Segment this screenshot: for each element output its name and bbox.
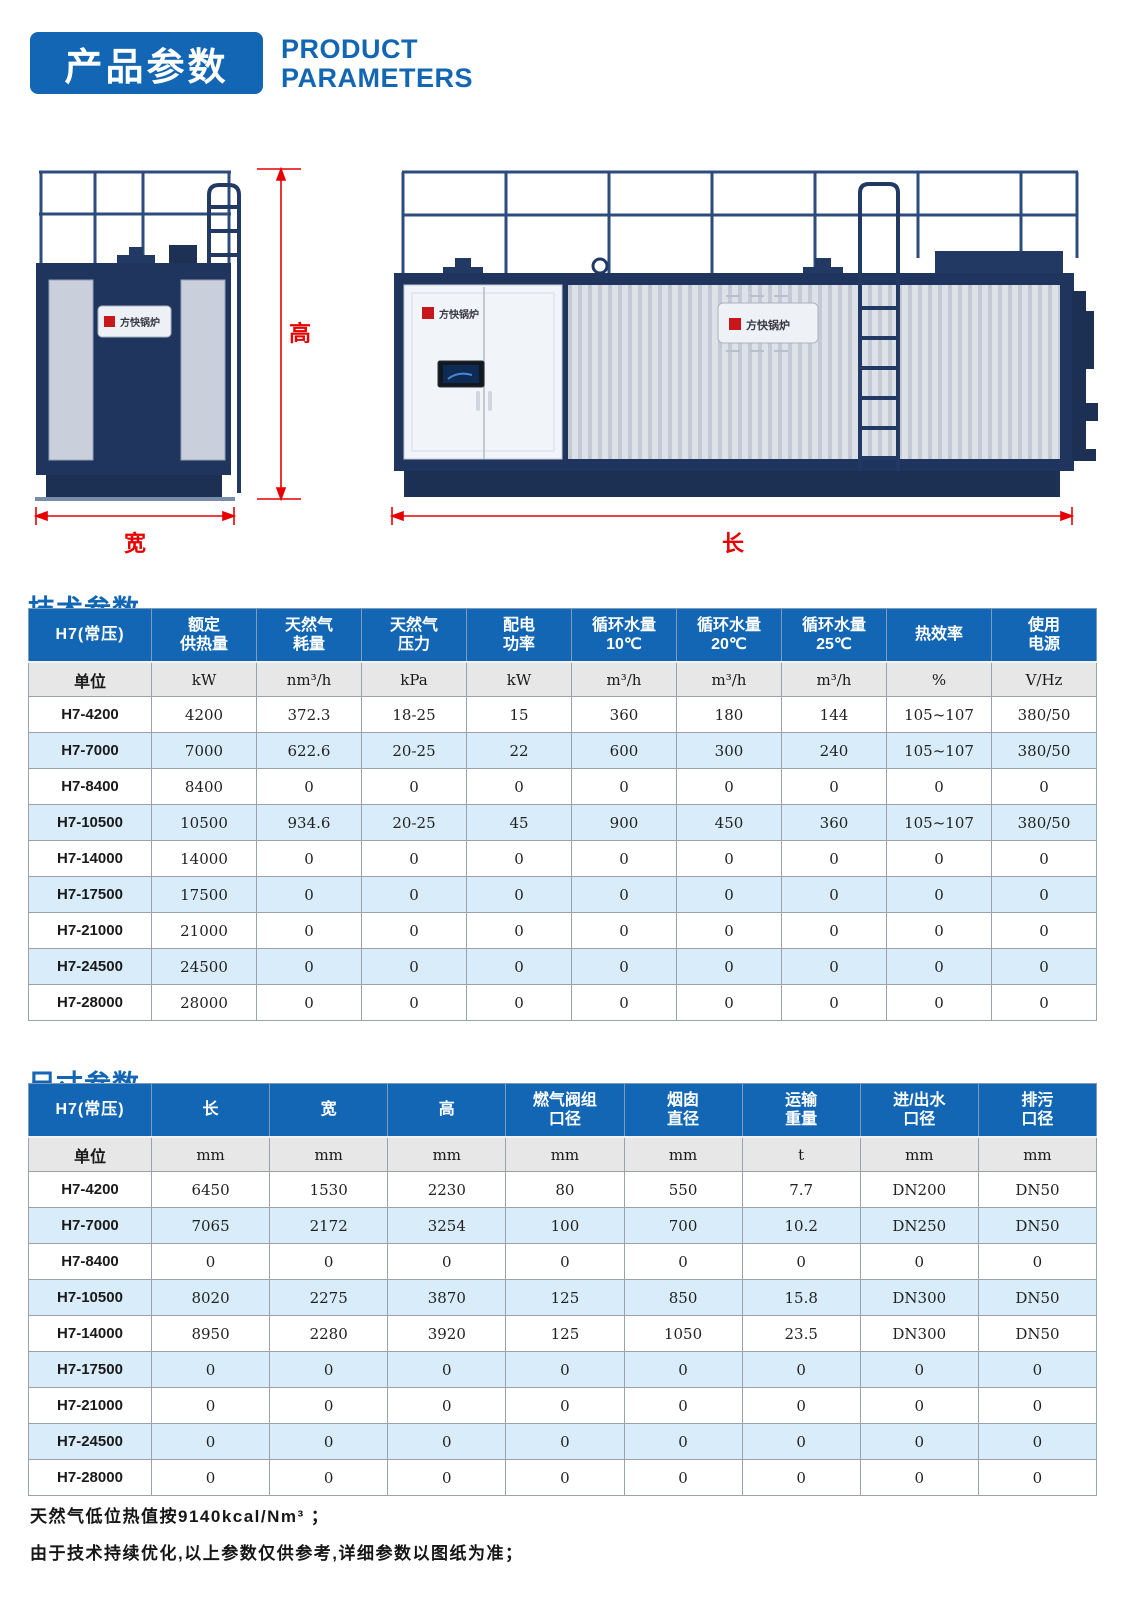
dims-cell-7-6: 0: [860, 1424, 978, 1460]
front-brand-plate: 方快锅炉: [98, 306, 171, 337]
dims-row-H7-4200: H7-4200645015302230805507.7DN200DN50: [29, 1172, 1097, 1208]
tech-cell-3-8: 380/50: [992, 805, 1097, 841]
tech-cell-8-4: 0: [572, 985, 677, 1021]
tech-unit-2: kPa: [362, 662, 467, 697]
tech-cell-0-8: 380/50: [992, 697, 1097, 733]
dims-cell-3-6: DN300: [860, 1280, 978, 1316]
tech-cell-3-6: 360: [782, 805, 887, 841]
dims-unit-2: mm: [388, 1137, 506, 1172]
tech-cell-3-5: 450: [677, 805, 782, 841]
tech-cell-5-0: 17500: [152, 877, 257, 913]
dims-cell-8-3: 0: [506, 1460, 624, 1496]
tech-cell-4-3: 0: [467, 841, 572, 877]
dims-unit-3: mm: [506, 1137, 624, 1172]
front-vent-stem: [129, 247, 143, 256]
dims-cell-5-6: 0: [860, 1352, 978, 1388]
tech-cell-7-4: 0: [572, 949, 677, 985]
tech-cell-8-0: 28000: [152, 985, 257, 1021]
dims-cell-3-7: DN50: [978, 1280, 1096, 1316]
tech-cell-3-7: 105~107: [887, 805, 992, 841]
dims-cell-5-2: 0: [388, 1352, 506, 1388]
tech-cell-6-1: 0: [257, 913, 362, 949]
dims-cell-5-0: 0: [152, 1352, 270, 1388]
page-title-en-line1: PRODUCT: [281, 35, 473, 64]
dims-cell-5-7: 0: [978, 1352, 1096, 1388]
tech-column-header-4: 循环水量 10℃: [572, 609, 677, 663]
dims-column-header-6: 进/出水 口径: [860, 1084, 978, 1138]
tech-row-H7-14000: H7-140001400000000000: [29, 841, 1097, 877]
dims-cell-4-1: 2280: [270, 1316, 388, 1352]
tech-cell-1-8: 380/50: [992, 733, 1097, 769]
tech-cell-1-6: 240: [782, 733, 887, 769]
tech-cell-3-2: 20-25: [362, 805, 467, 841]
dims-unit-1: mm: [270, 1137, 388, 1172]
dims-unit-6: mm: [860, 1137, 978, 1172]
tech-cell-5-7: 0: [887, 877, 992, 913]
dims-cell-0-2: 2230: [388, 1172, 506, 1208]
cabinet-brand-text: 方快锅炉: [439, 308, 479, 321]
tech-cell-8-1: 0: [257, 985, 362, 1021]
dims-model-1: H7-7000: [29, 1208, 152, 1244]
dims-cell-1-0: 7065: [152, 1208, 270, 1244]
dims-cell-3-2: 3870: [388, 1280, 506, 1316]
tech-model-5: H7-17500: [29, 877, 152, 913]
dims-model-7: H7-24500: [29, 1424, 152, 1460]
dims-cell-0-0: 6450: [152, 1172, 270, 1208]
side-chimney-duct: [1072, 291, 1098, 461]
tech-cell-7-6: 0: [782, 949, 887, 985]
tech-cell-8-8: 0: [992, 985, 1097, 1021]
dims-model-3: H7-10500: [29, 1280, 152, 1316]
tech-cell-6-7: 0: [887, 913, 992, 949]
tech-unit-5: m³/h: [677, 662, 782, 697]
tech-cell-7-2: 0: [362, 949, 467, 985]
tech-unit-7: %: [887, 662, 992, 697]
tech-row-H7-4200: H7-42004200372.318-2515360180144105~1073…: [29, 697, 1097, 733]
tech-column-header-8: 使用 电源: [992, 609, 1097, 663]
tech-unit-3: kW: [467, 662, 572, 697]
dims-cell-5-5: 0: [742, 1352, 860, 1388]
dims-cell-2-2: 0: [388, 1244, 506, 1280]
tech-cell-0-7: 105~107: [887, 697, 992, 733]
cabinet-screen: [438, 361, 484, 387]
dims-cell-2-5: 0: [742, 1244, 860, 1280]
tech-model-7: H7-24500: [29, 949, 152, 985]
tech-cell-7-3: 0: [467, 949, 572, 985]
tech-cell-8-5: 0: [677, 985, 782, 1021]
tech-cell-1-4: 600: [572, 733, 677, 769]
dims-cell-7-4: 0: [624, 1424, 742, 1460]
tech-cell-6-6: 0: [782, 913, 887, 949]
tech-cell-7-0: 24500: [152, 949, 257, 985]
tech-cell-8-7: 0: [887, 985, 992, 1021]
dims-cell-8-5: 0: [742, 1460, 860, 1496]
dims-column-header-4: 烟囱 直径: [624, 1084, 742, 1138]
tech-cell-2-0: 8400: [152, 769, 257, 805]
tech-cell-7-7: 0: [887, 949, 992, 985]
tech-unit-6: m³/h: [782, 662, 887, 697]
dims-cell-2-4: 0: [624, 1244, 742, 1280]
dims-unit-0: mm: [152, 1137, 270, 1172]
dims-cell-8-4: 0: [624, 1460, 742, 1496]
front-right-panel: [181, 280, 225, 460]
dims-unit-5: t: [742, 1137, 860, 1172]
tech-cell-5-5: 0: [677, 877, 782, 913]
tech-row-H7-21000: H7-210002100000000000: [29, 913, 1097, 949]
dims-cell-4-5: 23.5: [742, 1316, 860, 1352]
dims-cell-1-7: DN50: [978, 1208, 1096, 1244]
tech-cell-1-1: 622.6: [257, 733, 362, 769]
width-dimension-label: 宽: [124, 531, 146, 555]
tech-cell-2-3: 0: [467, 769, 572, 805]
tech-row-H7-28000: H7-280002800000000000: [29, 985, 1097, 1021]
dims-column-header-1: 宽: [270, 1084, 388, 1138]
tech-model-8: H7-28000: [29, 985, 152, 1021]
dims-cell-7-7: 0: [978, 1424, 1096, 1460]
dims-cell-0-1: 1530: [270, 1172, 388, 1208]
tech-cell-2-8: 0: [992, 769, 1097, 805]
height-dimension-label: 高: [289, 321, 311, 346]
dims-cell-8-1: 0: [270, 1460, 388, 1496]
dims-cell-5-3: 0: [506, 1352, 624, 1388]
tech-unit-1: nm³/h: [257, 662, 362, 697]
dims-model-4: H7-14000: [29, 1316, 152, 1352]
tech-cell-5-3: 0: [467, 877, 572, 913]
tech-model-2: H7-8400: [29, 769, 152, 805]
tech-cell-2-5: 0: [677, 769, 782, 805]
dims-row-H7-24500: H7-2450000000000: [29, 1424, 1097, 1460]
dims-cell-6-2: 0: [388, 1388, 506, 1424]
dims-unit-7: mm: [978, 1137, 1096, 1172]
dims-cell-5-1: 0: [270, 1352, 388, 1388]
side-top-fittings: [443, 251, 1063, 275]
tech-cell-6-0: 21000: [152, 913, 257, 949]
tech-cell-5-4: 0: [572, 877, 677, 913]
dims-column-header-7: 排污 口径: [978, 1084, 1096, 1138]
dims-corner-header: H7(常压): [29, 1084, 152, 1138]
dims-cell-2-1: 0: [270, 1244, 388, 1280]
tech-cell-7-5: 0: [677, 949, 782, 985]
dims-cell-8-2: 0: [388, 1460, 506, 1496]
dims-cell-7-2: 0: [388, 1424, 506, 1460]
page-title-en: PRODUCT PARAMETERS: [281, 35, 473, 93]
front-ground-line: [35, 497, 235, 501]
tech-cell-1-0: 7000: [152, 733, 257, 769]
front-vent-fitting: [117, 255, 155, 263]
dims-cell-0-7: DN50: [978, 1172, 1096, 1208]
tech-cell-5-6: 0: [782, 877, 887, 913]
tech-cell-0-6: 144: [782, 697, 887, 733]
dims-cell-5-4: 0: [624, 1352, 742, 1388]
tech-model-1: H7-7000: [29, 733, 152, 769]
dims-cell-2-3: 0: [506, 1244, 624, 1280]
tech-cell-6-4: 0: [572, 913, 677, 949]
tech-row-H7-7000: H7-70007000622.620-2522600300240105~1073…: [29, 733, 1097, 769]
tech-cell-8-6: 0: [782, 985, 887, 1021]
tech-model-6: H7-21000: [29, 913, 152, 949]
tech-column-header-2: 天然气 压力: [362, 609, 467, 663]
dims-cell-6-0: 0: [152, 1388, 270, 1424]
footnotes: 天然气低位热值按9140kcal/Nm³ ； 由于技术持续优化,以上参数仅供参考…: [30, 1498, 523, 1572]
dims-row-H7-8400: H7-840000000000: [29, 1244, 1097, 1280]
tech-cell-4-7: 0: [887, 841, 992, 877]
side-control-cabinet: 方快锅炉: [404, 285, 562, 459]
tech-cell-2-6: 0: [782, 769, 887, 805]
tech-cell-7-1: 0: [257, 949, 362, 985]
dims-cell-0-4: 550: [624, 1172, 742, 1208]
tech-column-header-1: 天然气 耗量: [257, 609, 362, 663]
tech-cell-4-0: 14000: [152, 841, 257, 877]
boiler-side-view-drawing: 方快锅炉 方快锅炉: [388, 163, 1100, 555]
dims-cell-3-4: 850: [624, 1280, 742, 1316]
dims-cell-0-3: 80: [506, 1172, 624, 1208]
tech-cell-1-3: 22: [467, 733, 572, 769]
dims-cell-3-3: 125: [506, 1280, 624, 1316]
dims-unit-label: 单位: [29, 1137, 152, 1172]
tech-cell-4-4: 0: [572, 841, 677, 877]
tech-cell-2-4: 0: [572, 769, 677, 805]
tech-cell-6-2: 0: [362, 913, 467, 949]
dims-cell-8-0: 0: [152, 1460, 270, 1496]
dims-row-H7-28000: H7-2800000000000: [29, 1460, 1097, 1496]
dims-cell-1-3: 100: [506, 1208, 624, 1244]
tech-row-H7-8400: H7-8400840000000000: [29, 769, 1097, 805]
dims-cell-7-1: 0: [270, 1424, 388, 1460]
dims-model-5: H7-17500: [29, 1352, 152, 1388]
dims-cell-3-5: 15.8: [742, 1280, 860, 1316]
tech-corner-header: H7(常压): [29, 609, 152, 663]
dims-row-H7-17500: H7-1750000000000: [29, 1352, 1097, 1388]
dims-row-H7-14000: H7-14000895022803920125105023.5DN300DN50: [29, 1316, 1097, 1352]
dims-cell-2-0: 0: [152, 1244, 270, 1280]
tech-cell-0-1: 372.3: [257, 697, 362, 733]
width-dimension-line: [36, 507, 234, 525]
tech-cell-4-1: 0: [257, 841, 362, 877]
tech-cell-3-0: 10500: [152, 805, 257, 841]
tech-cell-6-5: 0: [677, 913, 782, 949]
dims-cell-4-4: 1050: [624, 1316, 742, 1352]
dims-cell-7-5: 0: [742, 1424, 860, 1460]
tech-cell-0-4: 360: [572, 697, 677, 733]
dims-cell-0-5: 7.7: [742, 1172, 860, 1208]
footnote-disclaimer: 由于技术持续优化,以上参数仅供参考,详细参数以图纸为准；: [30, 1535, 523, 1572]
dims-cell-7-0: 0: [152, 1424, 270, 1460]
tech-cell-3-3: 45: [467, 805, 572, 841]
length-dimension-line: [392, 507, 1072, 525]
tech-column-header-5: 循环水量 20℃: [677, 609, 782, 663]
dims-cell-2-7: 0: [978, 1244, 1096, 1280]
dims-cell-1-2: 3254: [388, 1208, 506, 1244]
dims-cell-2-6: 0: [860, 1244, 978, 1280]
dims-cell-6-3: 0: [506, 1388, 624, 1424]
tech-cell-3-1: 934.6: [257, 805, 362, 841]
front-left-panel: [49, 280, 93, 460]
dims-model-8: H7-28000: [29, 1460, 152, 1496]
tech-column-header-7: 热效率: [887, 609, 992, 663]
dims-model-0: H7-4200: [29, 1172, 152, 1208]
page-title-cn: 产品参数: [30, 32, 263, 94]
dims-model-2: H7-8400: [29, 1244, 152, 1280]
dims-row-H7-7000: H7-700070652172325410070010.2DN250DN50: [29, 1208, 1097, 1244]
dims-cell-1-5: 10.2: [742, 1208, 860, 1244]
dims-cell-6-6: 0: [860, 1388, 978, 1424]
tech-cell-6-8: 0: [992, 913, 1097, 949]
dims-cell-1-6: DN250: [860, 1208, 978, 1244]
dims-cell-4-7: DN50: [978, 1316, 1096, 1352]
tech-model-3: H7-10500: [29, 805, 152, 841]
footnote-gas-heat-value: 天然气低位热值按9140kcal/Nm³ ；: [30, 1498, 523, 1535]
tech-unit-4: m³/h: [572, 662, 677, 697]
tech-cell-0-0: 4200: [152, 697, 257, 733]
tech-cell-2-2: 0: [362, 769, 467, 805]
dims-cell-7-3: 0: [506, 1424, 624, 1460]
dims-column-header-3: 燃气阀组 口径: [506, 1084, 624, 1138]
side-base: [404, 471, 1060, 497]
tech-model-4: H7-14000: [29, 841, 152, 877]
dims-cell-3-1: 2275: [270, 1280, 388, 1316]
tech-cell-4-8: 0: [992, 841, 1097, 877]
tech-cell-3-4: 900: [572, 805, 677, 841]
dims-cell-3-0: 8020: [152, 1280, 270, 1316]
tech-cell-8-3: 0: [467, 985, 572, 1021]
boiler-front-view-drawing: 方快锅炉 高 宽: [33, 163, 345, 555]
tech-unit-8: V/Hz: [992, 662, 1097, 697]
dims-cell-1-1: 2172: [270, 1208, 388, 1244]
side-brand-plate: 方快锅炉: [718, 296, 818, 351]
dims-cell-6-1: 0: [270, 1388, 388, 1424]
tech-cell-5-8: 0: [992, 877, 1097, 913]
tech-cell-0-5: 180: [677, 697, 782, 733]
tech-cell-0-2: 18-25: [362, 697, 467, 733]
tech-cell-5-2: 0: [362, 877, 467, 913]
tech-cell-2-7: 0: [887, 769, 992, 805]
page-title-en-line2: PARAMETERS: [281, 64, 473, 93]
dims-cell-6-7: 0: [978, 1388, 1096, 1424]
tech-cell-0-3: 15: [467, 697, 572, 733]
tech-cell-4-2: 0: [362, 841, 467, 877]
tech-params-table: H7(常压)额定 供热量天然气 耗量天然气 压力配电 功率循环水量 10℃循环水…: [28, 608, 1097, 1021]
dims-params-table: H7(常压)长宽高燃气阀组 口径烟囱 直径运输 重量进/出水 口径排污 口径单位…: [28, 1083, 1097, 1496]
tech-row-H7-10500: H7-1050010500934.620-2545900450360105~10…: [29, 805, 1097, 841]
tech-cell-1-5: 300: [677, 733, 782, 769]
dims-cell-4-0: 8950: [152, 1316, 270, 1352]
front-brand-text: 方快锅炉: [120, 316, 160, 329]
tech-model-0: H7-4200: [29, 697, 152, 733]
product-parameters-page: 产品参数 PRODUCT PARAMETERS: [0, 0, 1125, 1597]
tech-cell-1-7: 105~107: [887, 733, 992, 769]
tech-unit-0: kW: [152, 662, 257, 697]
tech-column-header-0: 额定 供热量: [152, 609, 257, 663]
dims-cell-8-6: 0: [860, 1460, 978, 1496]
dims-cell-8-7: 0: [978, 1460, 1096, 1496]
tech-column-header-3: 配电 功率: [467, 609, 572, 663]
dims-column-header-2: 高: [388, 1084, 506, 1138]
tech-cell-4-6: 0: [782, 841, 887, 877]
dims-cell-0-6: DN200: [860, 1172, 978, 1208]
dims-unit-4: mm: [624, 1137, 742, 1172]
dims-column-header-0: 长: [152, 1084, 270, 1138]
dims-cell-4-3: 125: [506, 1316, 624, 1352]
dims-cell-4-2: 3920: [388, 1316, 506, 1352]
dims-row-H7-21000: H7-2100000000000: [29, 1388, 1097, 1424]
tech-row-H7-24500: H7-245002450000000000: [29, 949, 1097, 985]
dims-cell-6-5: 0: [742, 1388, 860, 1424]
front-base: [46, 475, 222, 497]
tech-cell-6-3: 0: [467, 913, 572, 949]
tech-row-H7-17500: H7-175001750000000000: [29, 877, 1097, 913]
dims-cell-6-4: 0: [624, 1388, 742, 1424]
tech-cell-5-1: 0: [257, 877, 362, 913]
tech-column-header-6: 循环水量 25℃: [782, 609, 887, 663]
dims-cell-1-4: 700: [624, 1208, 742, 1244]
side-brand-text: 方快锅炉: [746, 318, 790, 332]
dims-model-6: H7-21000: [29, 1388, 152, 1424]
tech-cell-8-2: 0: [362, 985, 467, 1021]
tech-cell-4-5: 0: [677, 841, 782, 877]
dims-column-header-5: 运输 重量: [742, 1084, 860, 1138]
tech-cell-7-8: 0: [992, 949, 1097, 985]
dims-cell-4-6: DN300: [860, 1316, 978, 1352]
tech-cell-1-2: 20-25: [362, 733, 467, 769]
front-top-box: [169, 245, 197, 264]
tech-unit-label: 单位: [29, 662, 152, 697]
dims-row-H7-10500: H7-1050080202275387012585015.8DN300DN50: [29, 1280, 1097, 1316]
tech-cell-2-1: 0: [257, 769, 362, 805]
length-dimension-label: 长: [722, 531, 745, 555]
